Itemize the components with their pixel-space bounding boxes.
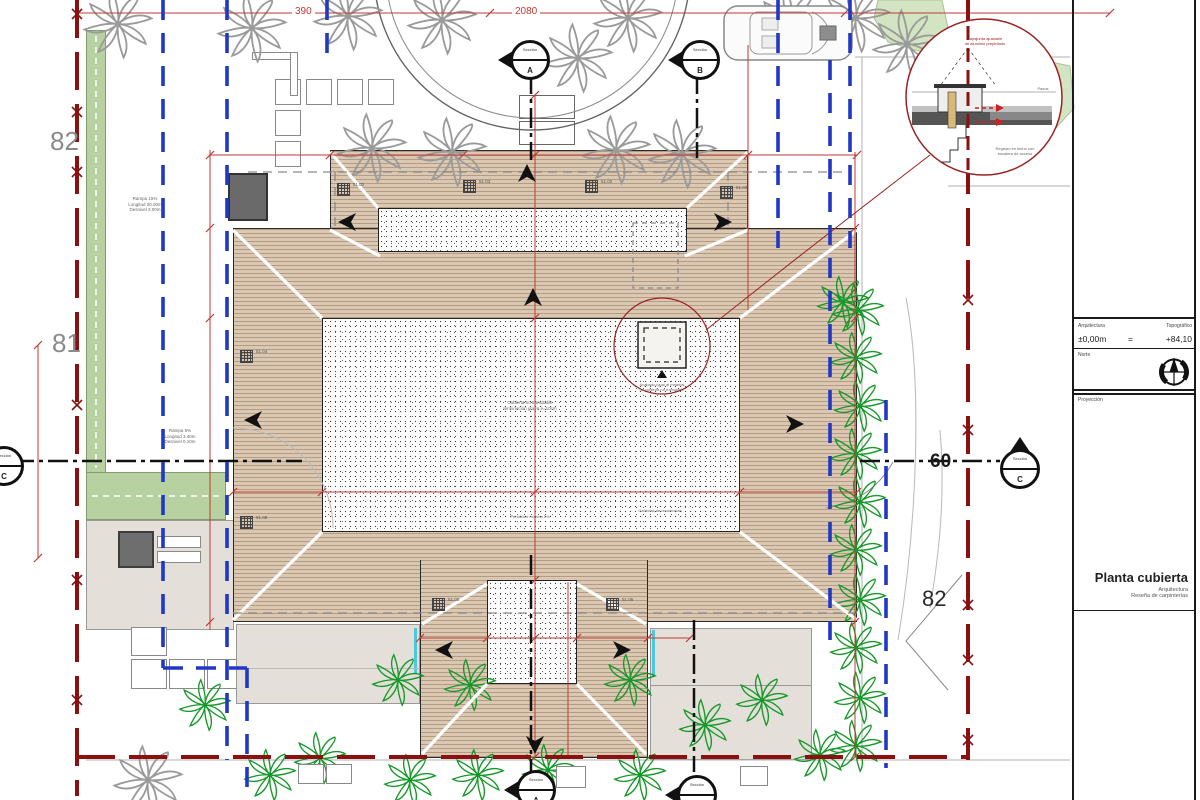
ramp-note-lower: Rampa 5% Longitud 3.40m Desnivel 0.10m [145, 428, 215, 445]
topo-level-value: +84,10 [1148, 334, 1192, 344]
north-arrow-icon [1158, 356, 1190, 388]
palm-tree-icon [418, 118, 485, 185]
section-marker-a-top: Sección A [510, 40, 550, 80]
paver [326, 764, 352, 784]
roof-drain: 51.03 [463, 180, 476, 193]
sheet-title: Planta cubierta [1028, 570, 1188, 585]
roof-center-note: Cubierta no transitable terminación grav… [455, 400, 605, 411]
paver [740, 766, 768, 786]
dimension-390: 390 [292, 7, 315, 17]
section-marker-b-top: Sección B [680, 40, 720, 80]
palm-tree-icon [408, 0, 475, 54]
roof-drain: 51.03 [720, 186, 733, 199]
site-plan-canvas: 390 2080 82 81 60 82 Rampa 15% Longitud … [0, 0, 1200, 800]
projection-label: Proyección [1078, 397, 1103, 403]
palm-tree-icon [648, 120, 715, 187]
palm-tree-icon [833, 285, 883, 335]
palm-tree-icon [544, 24, 611, 91]
ramp-arc [233, 428, 333, 528]
contour-label-60-right: 60 [930, 452, 951, 471]
palm-tree-icon [373, 655, 423, 705]
palm-tree-icon [180, 680, 230, 730]
roof-drain: 51.08 [240, 516, 253, 529]
title-block-border [1072, 0, 1074, 800]
palm-tree-icon [594, 0, 661, 52]
palm-tree-icon [835, 477, 885, 527]
title-block-rule [1072, 610, 1196, 611]
detail-note-pasos: Pasos [1028, 86, 1058, 91]
palm-tree-icon [582, 116, 649, 183]
title-block-rule [1072, 348, 1196, 349]
palm-tree-icon [114, 746, 181, 800]
section-arrow-icon [1010, 437, 1030, 452]
roof-drain: 51.05 [432, 598, 445, 611]
garden-centerline [92, 36, 222, 496]
paver [298, 764, 324, 784]
section-marker-c-right: Sección C [1000, 449, 1040, 489]
slope-arrows [244, 164, 804, 754]
palm-tree-icon [835, 575, 885, 625]
palm-tree-icon [835, 673, 885, 723]
contour-label-82-left: 82 [50, 128, 79, 154]
roof-drain: 51.04 [240, 350, 253, 363]
contour-label-81-left: 81 [52, 330, 81, 356]
title-block-rule [1072, 389, 1196, 391]
ramp-note-upper: Rampa 15% Longitud 20.00m Desnivel 3.00m [110, 196, 180, 213]
dimension-2080: 2080 [512, 7, 540, 17]
sheet-subtitle-2: Reseña de carpinterías [1028, 593, 1188, 599]
title-block-rule [1072, 317, 1196, 319]
detail-note-top: Tapajunta ajustable de aluminio prepinta… [940, 36, 1030, 46]
sheet-border [1194, 0, 1196, 800]
roof-drain: 51.02 [585, 180, 598, 193]
palm-tree-icon [314, 0, 381, 50]
palm-tree-icon [835, 381, 885, 431]
contour-label-82-right: 82 [922, 588, 946, 610]
palm-tree-icon [680, 700, 730, 750]
palm-tree-icon [831, 623, 881, 673]
palm-tree-icon [84, 0, 151, 58]
title-block-rule [1072, 393, 1196, 395]
car-icon [724, 6, 852, 60]
arch-label: Arquitectura [1078, 323, 1105, 329]
roof-note-sw: Pendiente mínima 2% [470, 514, 590, 519]
arch-level-value: ±0,00m [1078, 334, 1106, 344]
sheet-title-group: Planta cubierta Arquitectura Reseña de c… [1028, 570, 1188, 599]
roof-note-se: Cañerías de recolección [600, 508, 720, 513]
palm-tree-icon [831, 525, 881, 575]
detail-note-registro: Registro en techo con escalera de acceso [975, 146, 1055, 156]
projection-dashed-lines [233, 172, 857, 613]
topo-label: Topográfico [1150, 323, 1192, 329]
palm-tree-icon [605, 655, 655, 705]
north-label: Norte [1078, 352, 1090, 358]
skylight-note: Acabado igual al material de cubierta no… [597, 382, 727, 392]
paver [556, 766, 586, 788]
skylight-callout [614, 155, 930, 394]
roof-drain: 51.02 [337, 183, 350, 196]
palm-tree-icon [385, 755, 435, 800]
palm-tree-icon [831, 429, 881, 479]
roof-drain: 51.06 [606, 598, 619, 611]
palm-tree-icon [737, 675, 787, 725]
palm-tree-icon [818, 277, 868, 327]
palm-tree-icon [831, 333, 881, 383]
roof-hip-lines [233, 152, 857, 754]
property-lines [77, 0, 968, 796]
equals-sign: = [1128, 334, 1133, 344]
